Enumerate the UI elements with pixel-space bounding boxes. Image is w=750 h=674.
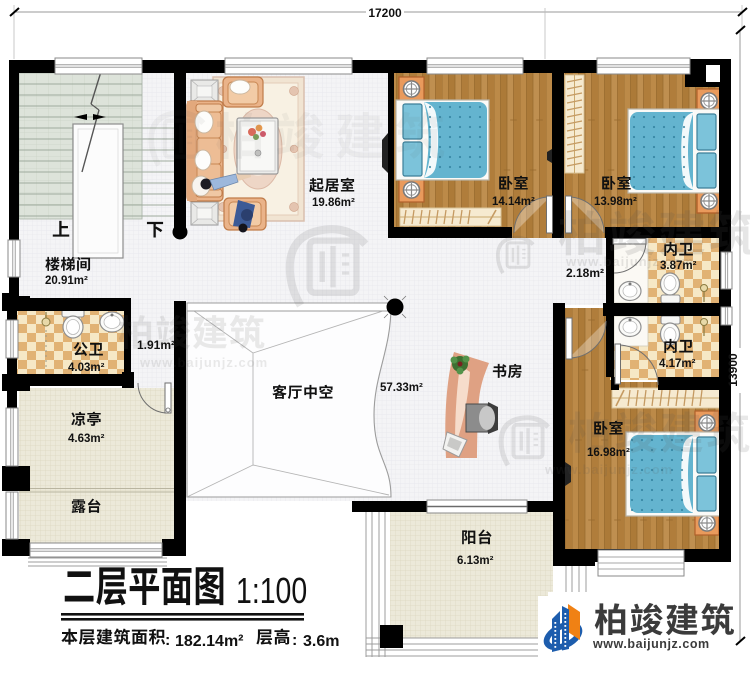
svg-text:13900: 13900	[726, 353, 740, 387]
svg-text:4.03m²: 4.03m²	[68, 362, 105, 374]
svg-text:3.6m: 3.6m	[303, 633, 339, 650]
svg-text:19.86m²: 19.86m²	[312, 197, 355, 209]
svg-text::: :	[165, 632, 170, 649]
svg-text:www.baijunjz.com: www.baijunjz.com	[544, 462, 673, 477]
svg-text:182.14m²: 182.14m²	[175, 633, 244, 650]
svg-text:14.14m²: 14.14m²	[492, 196, 535, 208]
svg-text:6.13m²: 6.13m²	[457, 555, 494, 567]
svg-text:www.baijunjz.com: www.baijunjz.com	[139, 355, 268, 370]
svg-text::: :	[292, 632, 297, 649]
svg-text:1.91m²: 1.91m²	[137, 338, 175, 352]
svg-text:4.63m²: 4.63m²	[68, 433, 105, 445]
svg-text:2.18m²: 2.18m²	[566, 266, 604, 280]
svg-text:3.87m²: 3.87m²	[660, 260, 697, 272]
svg-text:17200: 17200	[368, 6, 402, 20]
svg-text:4.17m²: 4.17m²	[659, 358, 696, 370]
svg-text:57.33m²: 57.33m²	[380, 382, 423, 394]
svg-text:16.98m²: 16.98m²	[587, 447, 630, 459]
svg-text:www.baijunjz.com: www.baijunjz.com	[592, 637, 710, 651]
svg-text:20.91m²: 20.91m²	[45, 275, 88, 287]
svg-text:1:100: 1:100	[236, 571, 307, 611]
svg-text:13.98m²: 13.98m²	[594, 196, 637, 208]
